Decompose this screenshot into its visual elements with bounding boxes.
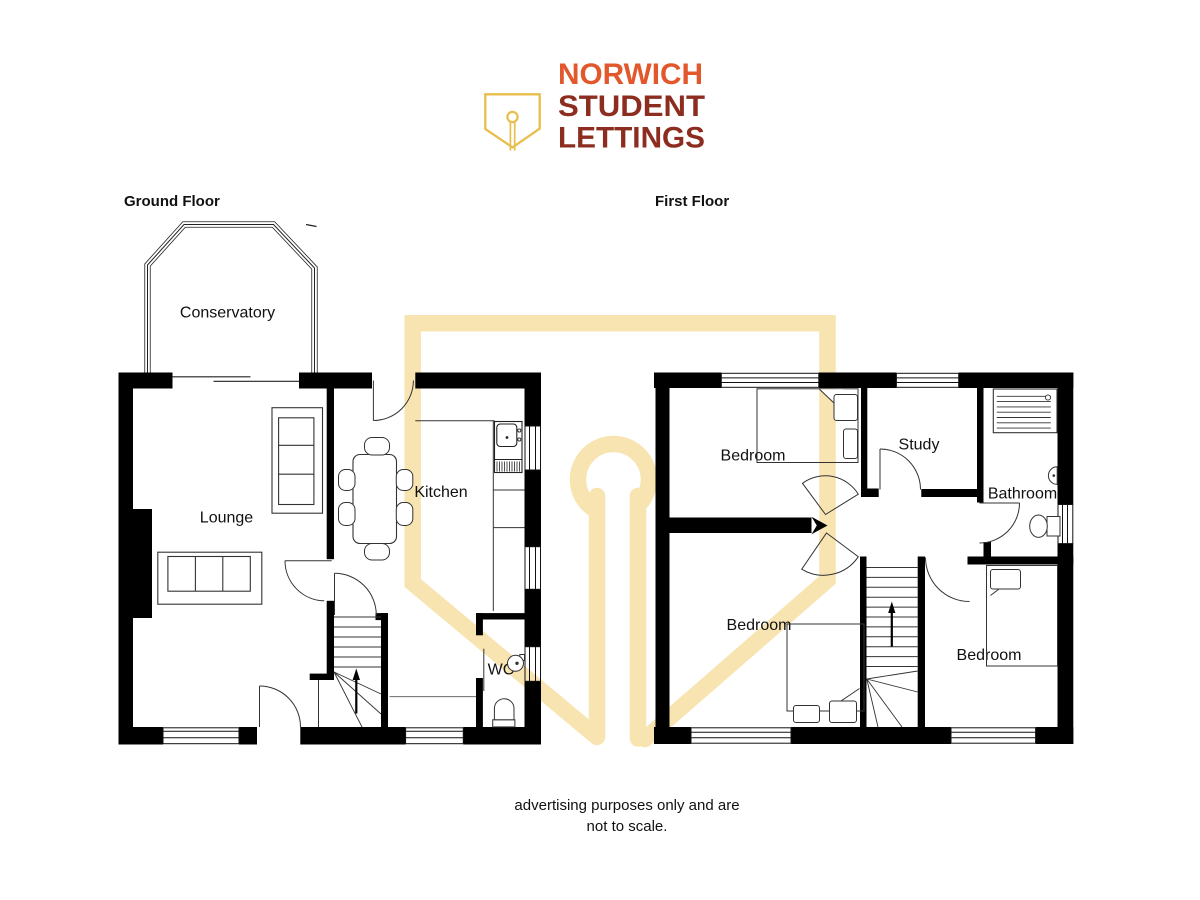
svg-text:NORWICH: NORWICH (558, 58, 703, 91)
svg-text:Bedroom: Bedroom (727, 617, 792, 634)
svg-text:Kitchen: Kitchen (414, 484, 467, 501)
svg-text:Bedroom: Bedroom (721, 448, 786, 465)
svg-text:Study: Study (899, 437, 940, 454)
svg-text:First Floor: First Floor (655, 193, 729, 210)
svg-text:Lounge: Lounge (200, 510, 253, 527)
svg-text:Bedroom: Bedroom (957, 647, 1022, 664)
svg-text:Bathroom: Bathroom (988, 486, 1057, 503)
svg-text:advertising purposes only and: advertising purposes only and are (514, 797, 739, 814)
svg-text:Ground Floor: Ground Floor (124, 193, 220, 210)
svg-text:Conservatory: Conservatory (180, 305, 275, 322)
svg-text:STUDENT: STUDENT (558, 90, 705, 123)
svg-text:not to scale.: not to scale. (587, 818, 668, 835)
svg-text:LETTINGS: LETTINGS (558, 122, 705, 155)
